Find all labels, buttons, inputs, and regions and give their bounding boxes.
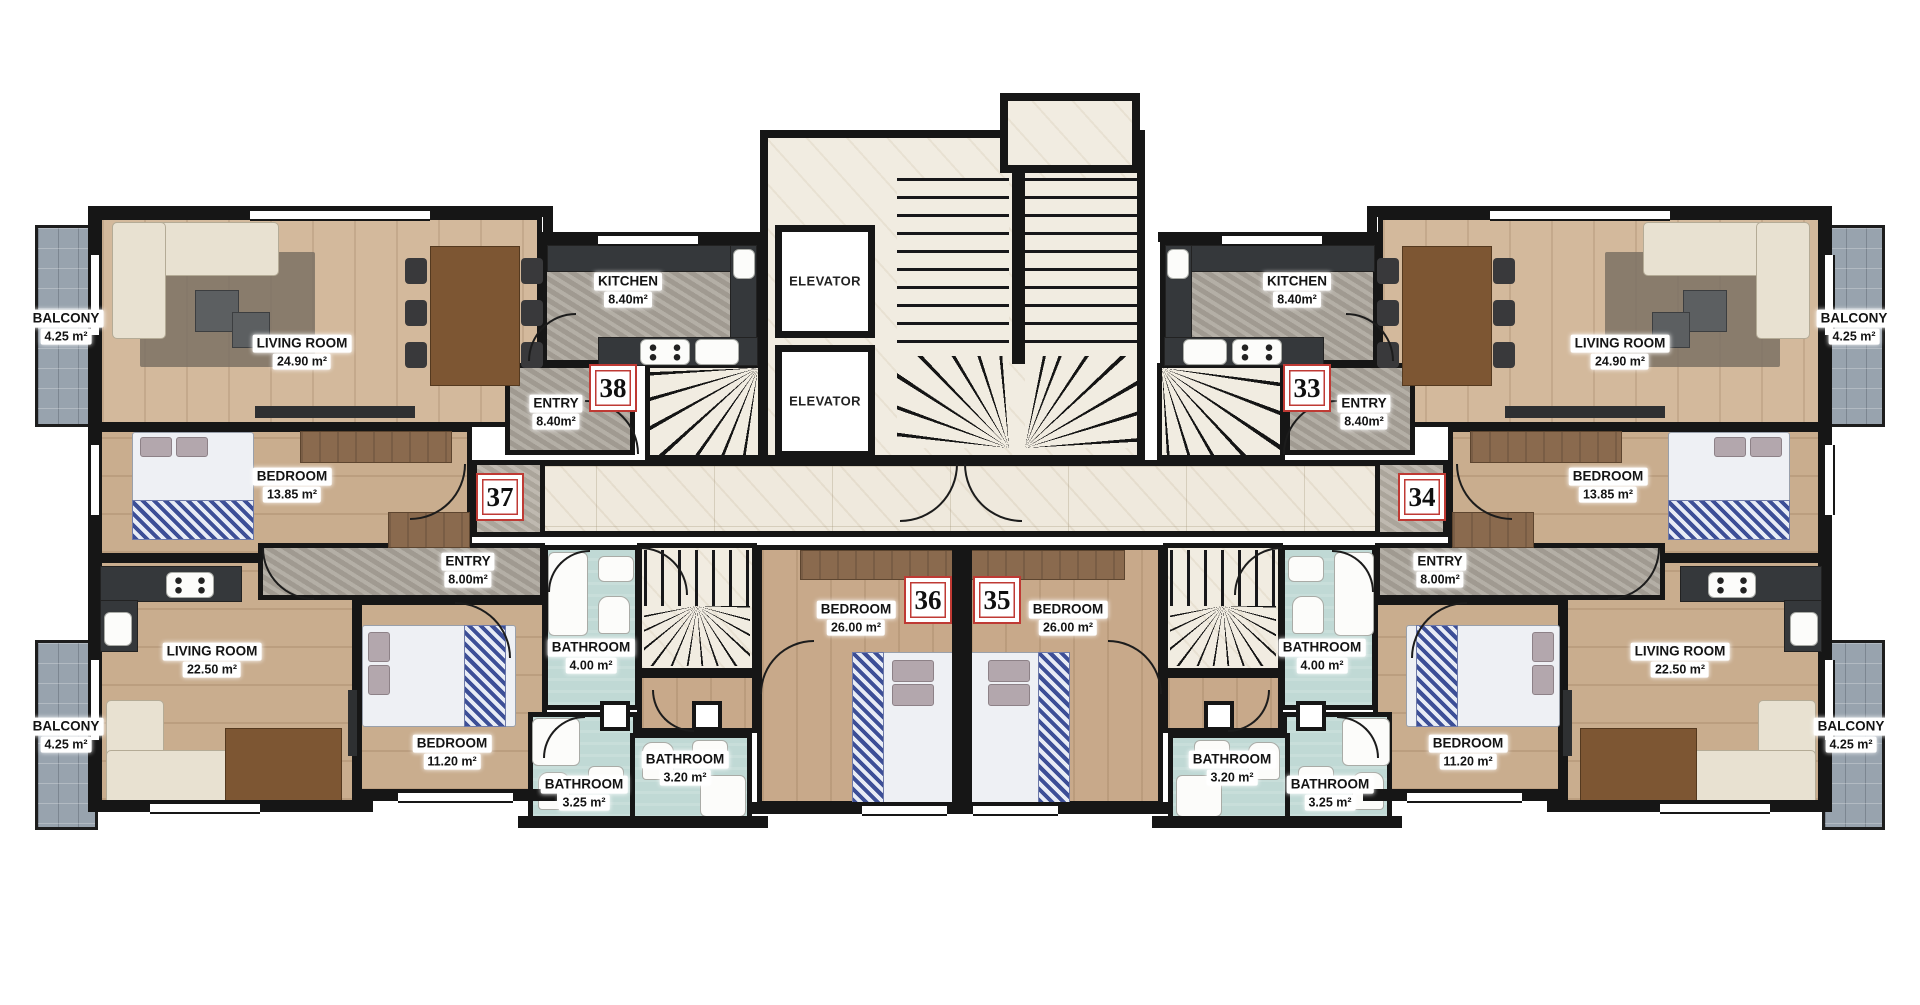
sink-kr xyxy=(1167,249,1189,279)
bedroom-divider-wall xyxy=(952,545,972,806)
central-corridor xyxy=(472,460,1448,537)
stove-kr xyxy=(1232,339,1282,365)
bed-bl-pillow-1 xyxy=(368,632,390,662)
wall-bottom-3 xyxy=(518,816,768,828)
sink-35 xyxy=(1194,740,1230,766)
stove-bl xyxy=(166,572,214,598)
sink-bl xyxy=(104,612,132,646)
window-bedroom-tl xyxy=(89,445,101,515)
wall-bottom-5 xyxy=(1152,816,1402,828)
bed-tr-pillow-2 xyxy=(1750,437,1782,457)
sofa-tr-side xyxy=(1756,222,1810,339)
window-balcony-tr-door xyxy=(1823,255,1835,335)
unit-number-box-38: 38 xyxy=(589,364,637,412)
counter-kl-top xyxy=(547,245,757,272)
window-kitchen-r xyxy=(1222,234,1322,246)
wall-step-left xyxy=(543,206,553,242)
chair-l4 xyxy=(521,258,543,284)
window-balcony-tl-door xyxy=(89,255,101,335)
light-shaft-right-1 xyxy=(1296,701,1326,731)
stair-connector-left xyxy=(645,363,763,460)
shower-36 xyxy=(700,775,746,817)
bed-36-pillow-1 xyxy=(892,660,934,682)
window-kitchen-l xyxy=(598,234,698,246)
toilet-36 xyxy=(642,742,674,780)
bed-35-blanket xyxy=(1038,652,1070,804)
coffee-table-tl-2 xyxy=(232,312,270,348)
cabinet-kr xyxy=(1183,339,1227,365)
bed-br-pillow-2 xyxy=(1532,665,1554,695)
window-bedroom-bl xyxy=(398,791,513,803)
toilet-l-400 xyxy=(598,596,630,634)
sink-r-400 xyxy=(1288,556,1324,582)
window-living-tl xyxy=(250,209,430,221)
tv-bl xyxy=(348,690,357,756)
tv-unit-tl xyxy=(255,406,415,418)
main-stair-right-run xyxy=(1025,178,1137,356)
chair-r1 xyxy=(1377,258,1399,284)
tv-br xyxy=(1563,690,1572,756)
main-stair-rail-winder xyxy=(1025,356,1137,448)
chair-r5 xyxy=(1493,300,1515,326)
window-living-br xyxy=(1660,802,1770,814)
wall-bottom-4 xyxy=(748,802,1172,814)
table-br xyxy=(1580,728,1697,810)
toilet-r-400 xyxy=(1292,596,1324,634)
window-bedroom-35 xyxy=(973,804,1058,816)
window-bedroom-br xyxy=(1407,791,1522,803)
bed-br-pillow-1 xyxy=(1532,632,1554,662)
unit-number-box-34: 34 xyxy=(1398,473,1446,521)
dresser-tr xyxy=(1452,512,1534,548)
table-bl xyxy=(225,728,342,810)
bed-bl-pillow-2 xyxy=(368,665,390,695)
wall-step-right xyxy=(1367,206,1377,242)
stove-br xyxy=(1708,572,1756,598)
sink-l-400 xyxy=(598,556,634,582)
bed-tr-blanket xyxy=(1668,500,1790,540)
window-living-bl xyxy=(150,802,260,814)
sofa-tl-side xyxy=(112,222,166,339)
bed-36-blanket xyxy=(852,652,884,804)
tv-unit-tr xyxy=(1505,406,1665,418)
unit-number-38: 38 xyxy=(600,373,627,404)
light-shaft-left-1 xyxy=(600,701,630,731)
bed-35-pillow-1 xyxy=(988,660,1030,682)
unit-number-box-37: 37 xyxy=(476,473,524,521)
chair-l3 xyxy=(405,342,427,368)
chair-r4 xyxy=(1493,258,1515,284)
unit-number-box-33: 33 xyxy=(1283,364,1331,412)
chair-r6 xyxy=(1493,342,1515,368)
chair-l1 xyxy=(405,258,427,284)
floor-plan: BALCONY 4.25 m² LIVING ROOM 24.90 m² KIT… xyxy=(0,0,1920,1005)
window-living-tr xyxy=(1490,209,1670,221)
sofa-bl-bottom xyxy=(106,750,236,806)
dresser-tl xyxy=(388,512,470,548)
sink-r-325 xyxy=(1298,766,1334,792)
unit-number-34: 34 xyxy=(1409,482,1436,513)
unit-number-36: 36 xyxy=(915,585,942,616)
dining-table-r xyxy=(1402,246,1492,386)
duplex-stair-36-winder xyxy=(644,606,750,666)
coffee-table-tr-2 xyxy=(1652,312,1690,348)
bed-tl-pillow-1 xyxy=(140,437,172,457)
window-balcony-bl-door xyxy=(89,660,101,740)
chair-l5 xyxy=(521,300,543,326)
sink-kl xyxy=(733,249,755,279)
bed-tr-pillow-1 xyxy=(1714,437,1746,457)
toilet-35 xyxy=(1248,742,1280,780)
shower-35 xyxy=(1176,775,1222,817)
bed-tl-pillow-2 xyxy=(176,437,208,457)
main-stair-left-winder xyxy=(897,356,1009,448)
elevator-1-label: ELEVATOR xyxy=(789,274,861,289)
bed-tl-blanket xyxy=(132,500,254,540)
elevator-2-label: ELEVATOR xyxy=(789,394,861,409)
stair-connector-right xyxy=(1157,363,1285,460)
main-stair-stringer xyxy=(1012,172,1025,364)
unit-number-box-35: 35 xyxy=(973,576,1021,624)
window-bedroom-tr xyxy=(1823,445,1835,515)
bed-36-pillow-2 xyxy=(892,684,934,706)
unit-number-33: 33 xyxy=(1294,373,1321,404)
main-stair-left-run xyxy=(897,178,1009,356)
chair-l2 xyxy=(405,300,427,326)
sink-br xyxy=(1790,612,1818,646)
counter-kr-top xyxy=(1165,245,1375,272)
light-shaft-left-2 xyxy=(692,701,722,731)
sink-36 xyxy=(692,740,728,766)
core-top-landing xyxy=(1000,93,1140,173)
cabinet-kl xyxy=(695,339,739,365)
unit-number-37: 37 xyxy=(487,482,514,513)
wardrobe-tr xyxy=(1470,431,1622,463)
bed-35-pillow-2 xyxy=(988,684,1030,706)
stove-kl xyxy=(640,339,690,365)
duplex-stair-35-winder xyxy=(1170,606,1276,666)
unit-number-35: 35 xyxy=(984,585,1011,616)
wardrobe-tl xyxy=(300,431,452,463)
sofa-br-bottom xyxy=(1686,750,1816,806)
window-balcony-br-door xyxy=(1823,660,1835,740)
chair-r2 xyxy=(1377,300,1399,326)
unit-number-box-36: 36 xyxy=(904,576,952,624)
dining-table-l xyxy=(430,246,520,386)
window-bedroom-36 xyxy=(862,804,947,816)
sink-l-325 xyxy=(588,766,624,792)
